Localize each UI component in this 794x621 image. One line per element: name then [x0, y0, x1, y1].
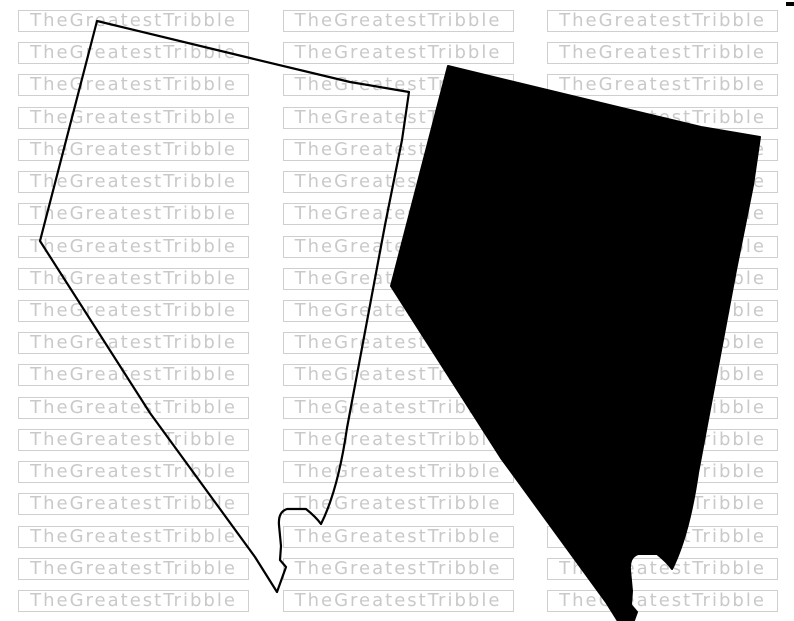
clipart-canvas: TheGreatestTribbleTheGreatestTribbleTheG…: [0, 0, 794, 621]
corner-crop-mark: [786, 2, 794, 6]
nevada-silhouette-map: [391, 66, 760, 621]
nevada-outline-map: [40, 21, 409, 592]
state-maps-graphic: [0, 0, 794, 621]
